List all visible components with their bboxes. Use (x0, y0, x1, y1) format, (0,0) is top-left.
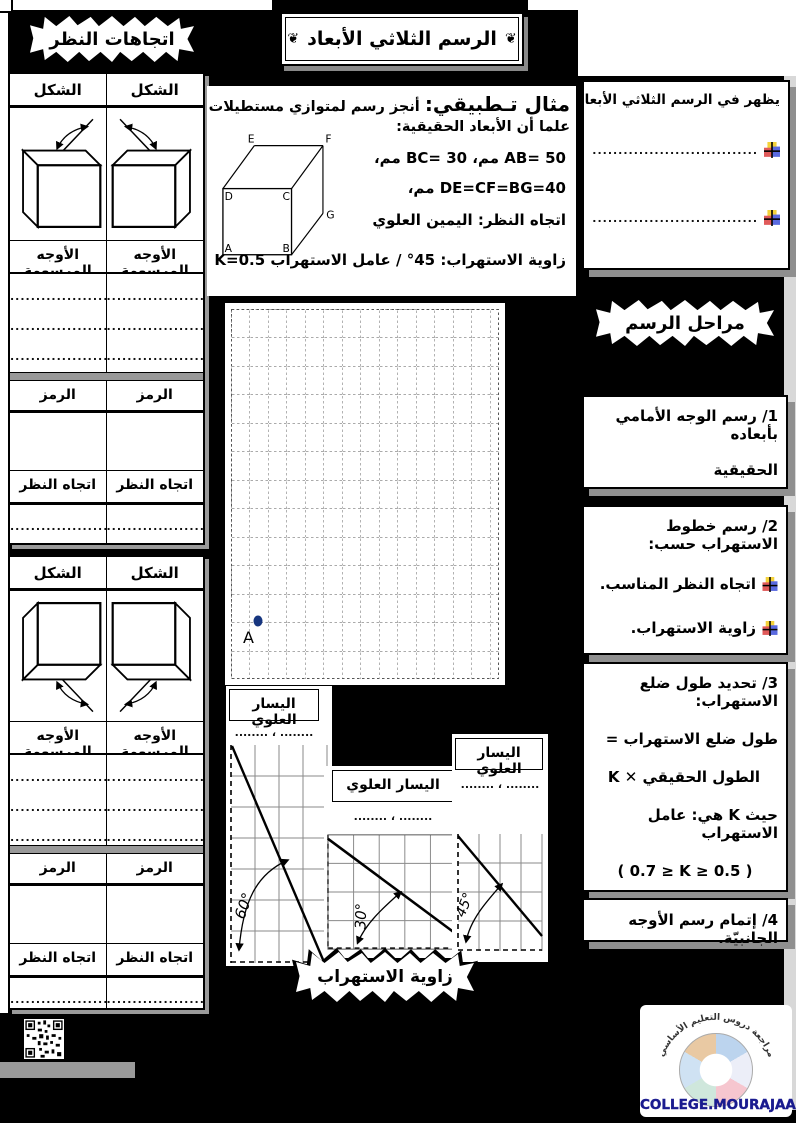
diagram-60-label: اليسار العلوي (229, 689, 319, 721)
shape-header: الشكل (107, 557, 204, 591)
divider-bar (10, 372, 203, 380)
step4-line: 4/ إتمام رسم الأوجه الجانبيّة. (592, 911, 778, 947)
cube-label-f: F (325, 132, 331, 145)
title-ornament-left-icon: ❦ (287, 31, 299, 47)
view-directions-header: اتجاهات النظر (26, 12, 198, 66)
faces-answer-cell: ...................... .................… (107, 274, 204, 372)
view-answer-cell: ...................... (10, 504, 107, 543)
view-directions-header-text: اتجاهات النظر (26, 12, 198, 66)
faces-header: الأوجه المرسومة (10, 721, 107, 755)
view-header: اتجاه النظر (107, 943, 204, 977)
view-header: اتجاه النظر (107, 470, 204, 504)
colored-square-bullet-icon (762, 621, 778, 636)
cuboid-bottom-right-cell (107, 591, 204, 721)
divider-bar (10, 845, 203, 853)
appears-item-2: .................................... (592, 210, 780, 226)
view-header: اتجاه النظر (10, 470, 107, 504)
step2-title: 2/ رسم خطوط الاستهراب حسب: (592, 517, 778, 553)
cuboid-bottom-left-cell (10, 591, 107, 721)
appears-box-title: يظهر في الرسم الثلاثي الأبعاد (592, 92, 780, 108)
step1-box: 1/ رسم الوجه الأمامي بأبعاده الحقيقية (582, 395, 788, 489)
point-a-label: A (243, 628, 254, 647)
cuboid-top-left-cell (10, 108, 107, 240)
dotted-grid: A (231, 309, 499, 679)
cuboid-view-up-right (109, 111, 201, 237)
angle-30-value: 30° (352, 903, 370, 930)
symbol-answer-cell (107, 412, 204, 470)
site-logo-box: موقع مراجعة دروس التعليم الأساسي COLLEGE… (640, 1005, 792, 1117)
diagram-30-grid: 30° (326, 830, 460, 954)
cube-label-c: C (282, 190, 290, 203)
diagram-60-grid: 60° (230, 744, 330, 964)
qr-code-icon (24, 1018, 64, 1060)
angle-60-value: 60° (231, 890, 257, 921)
step3-line3: الطول الحقيقي ✕ K (592, 768, 778, 786)
cube-label-a: A (225, 242, 233, 255)
step1-line1: 1/ رسم الوجه الأمامي بأبعاده (592, 407, 778, 443)
diagram-45-grid: 45° (456, 832, 544, 954)
page-title: الرسم الثلاثي الأبعاد (307, 28, 497, 50)
faces-header: الأوجه المرسومة (107, 721, 204, 755)
step3-line2: طول ضلع الاستهراب = (592, 730, 778, 748)
symbol-header: الرمز (107, 853, 204, 885)
step4-box: 4/ إتمام رسم الأوجه الجانبيّة. (582, 898, 788, 942)
diagram-30-dots: ........ ، ........ (324, 810, 462, 823)
symbol-header: الرمز (107, 380, 204, 412)
angle-diagram-45: اليسار العلوي ........ ، ........ 45° (452, 734, 548, 962)
title-ornament-right-icon: ❦ (505, 31, 517, 47)
faces-header: الأوجه المرسومة (10, 240, 107, 274)
diagram-30-label: اليسار العلوي (332, 770, 454, 802)
step1-line2: الحقيقية (592, 461, 778, 479)
example-heading: مثال تـطبيقي: أنجز رسم لمتوازي مستطيلات … (207, 86, 576, 135)
example-cuboid-diagram: E F D C G A B (213, 130, 337, 272)
diagram-60-dots: ........ ، ........ (226, 726, 322, 739)
faces-answer-cell: ...................... .................… (10, 274, 107, 372)
appears-box: يظهر في الرسم الثلاثي الأبعاد ..........… (582, 80, 790, 270)
view-answer-cell: ...................... (107, 977, 204, 1008)
step3-line4: حيث K هي: عامل الاستهراب (592, 806, 778, 842)
title-box: ❦ الرسم الثلاثي الأبعاد ❦ (280, 12, 524, 66)
step3-box: 3/ تحديد طول ضلع الاستهراب: طول ضلع الاس… (582, 662, 788, 892)
angle-diagram-30: اليسار العلوي ........ ، ........ 30° (324, 766, 462, 958)
directions-table-top: الشكل الشكل الأوجه المرسومة الأوجه المرس… (8, 72, 205, 545)
faces-answer-cell: ...................... .................… (10, 755, 107, 845)
stages-header: مراحل الرسم (592, 296, 778, 350)
symbol-answer-cell (10, 885, 107, 943)
directions-table-bottom: الشكل الشكل الأوجه المرسومة الأوجه المرس… (8, 555, 205, 1010)
site-url: COLLEGE.MOURAJAA.COM (640, 1097, 792, 1113)
cuboid-view-down-left (12, 593, 104, 719)
faces-answer-cell: ...................... .................… (107, 755, 204, 845)
angle-45-value: 45° (456, 890, 477, 919)
step3-line5: ( 0.7 ≥ K ≥ 0.5 ) (592, 862, 778, 880)
shape-header: الشكل (107, 74, 204, 108)
appears-item-1: .................................... (592, 142, 780, 158)
view-answer-cell: ...................... (107, 504, 204, 543)
drawing-grid-area: A (225, 303, 505, 685)
colored-square-bullet-icon (764, 142, 780, 158)
page-margin-right-top (578, 8, 796, 76)
symbol-answer-cell (10, 412, 107, 470)
cuboid-view-up-left (12, 111, 104, 237)
example-block: مثال تـطبيقي: أنجز رسم لمتوازي مستطيلات … (207, 86, 576, 296)
page-margin-left (0, 10, 8, 1013)
diagram-45-label: اليسار العلوي (455, 738, 543, 770)
step2-item-1: اتجاه النظر المناسب. (592, 575, 778, 593)
symbol-header: الرمز (10, 853, 107, 885)
step3-line1: 3/ تحديد طول ضلع الاستهراب: (592, 674, 778, 710)
view-header: اتجاه النظر (10, 943, 107, 977)
cube-label-g: G (326, 208, 334, 221)
example-title: مثال تـطبيقي: (425, 92, 570, 116)
gray-band-bottom-left (0, 1062, 135, 1078)
symbol-answer-cell (107, 885, 204, 943)
step2-box: 2/ رسم خطوط الاستهراب حسب: اتجاه النظر ا… (582, 505, 788, 655)
site-logo-donut-icon (679, 1033, 753, 1107)
cube-label-d: D (225, 190, 233, 203)
faces-header: الأوجه المرسومة (107, 240, 204, 274)
stages-header-text: مراحل الرسم (592, 296, 778, 350)
cuboid-view-down-right (109, 593, 201, 719)
cuboid-top-right-cell (107, 108, 204, 240)
colored-square-bullet-icon (762, 577, 778, 592)
shape-header: الشكل (10, 557, 107, 591)
angle-section-header: زاوية الاستهراب (292, 948, 478, 1006)
step2-item-2: زاوية الاستهراب. (592, 619, 778, 637)
angle-diagram-60: اليسار العلوي ........ ، ........ 60° (226, 686, 332, 966)
diagram-45-dots: ........ ، ........ (452, 778, 548, 791)
colored-square-bullet-icon (764, 210, 780, 226)
view-answer-cell: ...................... (10, 977, 107, 1008)
corner-mark (0, 0, 13, 13)
cube-label-e: E (248, 132, 255, 145)
point-a-dot (254, 616, 263, 627)
page-margin-top-left (0, 0, 272, 10)
worksheet-page: ❦ الرسم الثلاثي الأبعاد ❦ اتجاهات النظر … (0, 0, 796, 1123)
shape-header: الشكل (10, 74, 107, 108)
angle-section-header-text: زاوية الاستهراب (292, 948, 478, 1006)
symbol-header: الرمز (10, 380, 107, 412)
cube-label-b: B (282, 242, 289, 255)
